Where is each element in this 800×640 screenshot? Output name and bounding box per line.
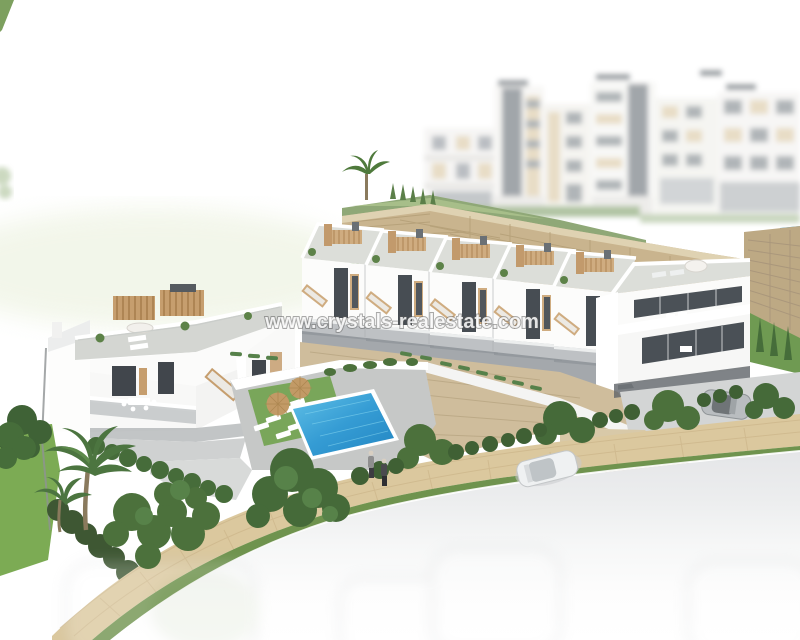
svg-text:www.crystals-realestate.com: www.crystals-realestate.com: [264, 311, 539, 333]
